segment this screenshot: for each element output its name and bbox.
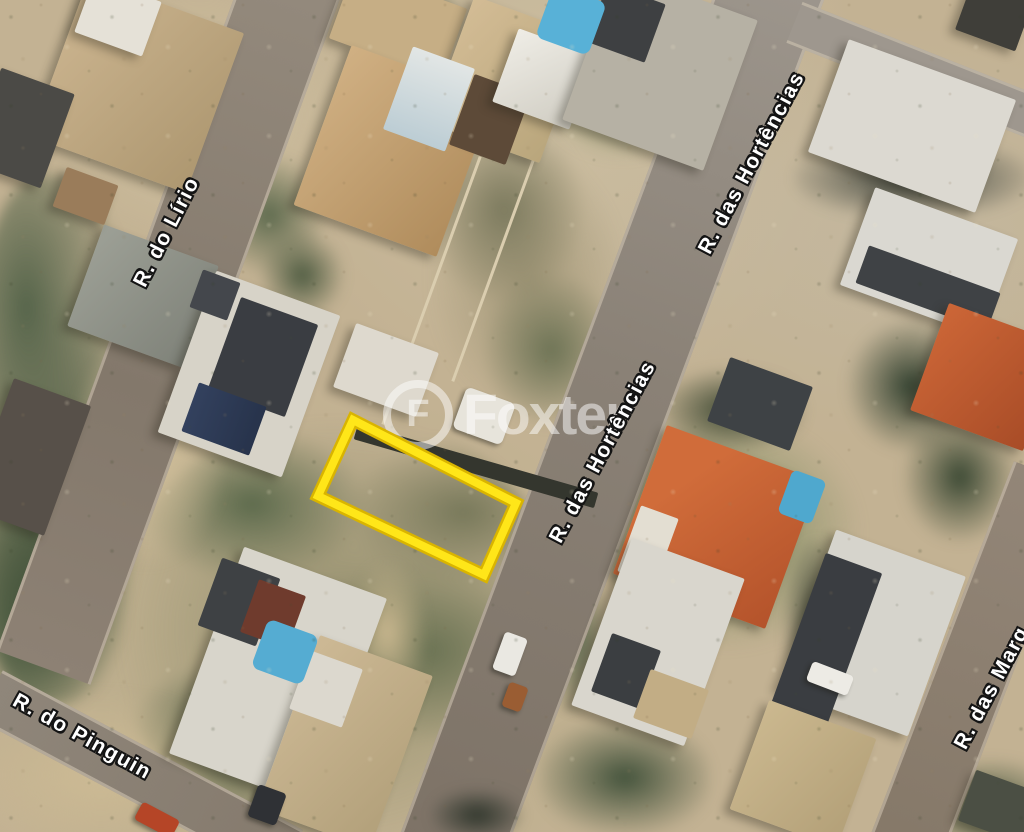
roof-tan-house [730,700,877,832]
roof-dark-house [955,0,1024,51]
tree-over-road [432,790,522,832]
satellite-map: F Foxter R. do Lírio R. das Hortências R… [0,0,1024,832]
